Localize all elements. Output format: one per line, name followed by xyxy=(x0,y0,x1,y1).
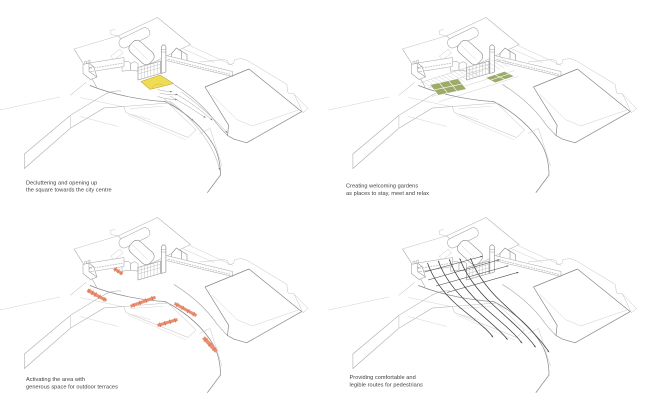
svg-text:Activating the area with: Activating the area with xyxy=(26,377,85,383)
svg-text:legible routes for pedestrians: legible routes for pedestrians xyxy=(350,383,423,389)
svg-text:the square towards the city ce: the square towards the city centre xyxy=(26,188,112,194)
svg-text:generous space for outdoor ter: generous space for outdoor terraces xyxy=(26,384,118,390)
svg-text:Providing comfortable and: Providing comfortable and xyxy=(350,375,416,381)
svg-text:Creating welcoming gardens: Creating welcoming gardens xyxy=(346,184,418,190)
svg-text:Decluttering and opening up: Decluttering and opening up xyxy=(26,180,97,186)
svg-text:as places to stay, meet and re: as places to stay, meet and relax xyxy=(346,191,429,197)
